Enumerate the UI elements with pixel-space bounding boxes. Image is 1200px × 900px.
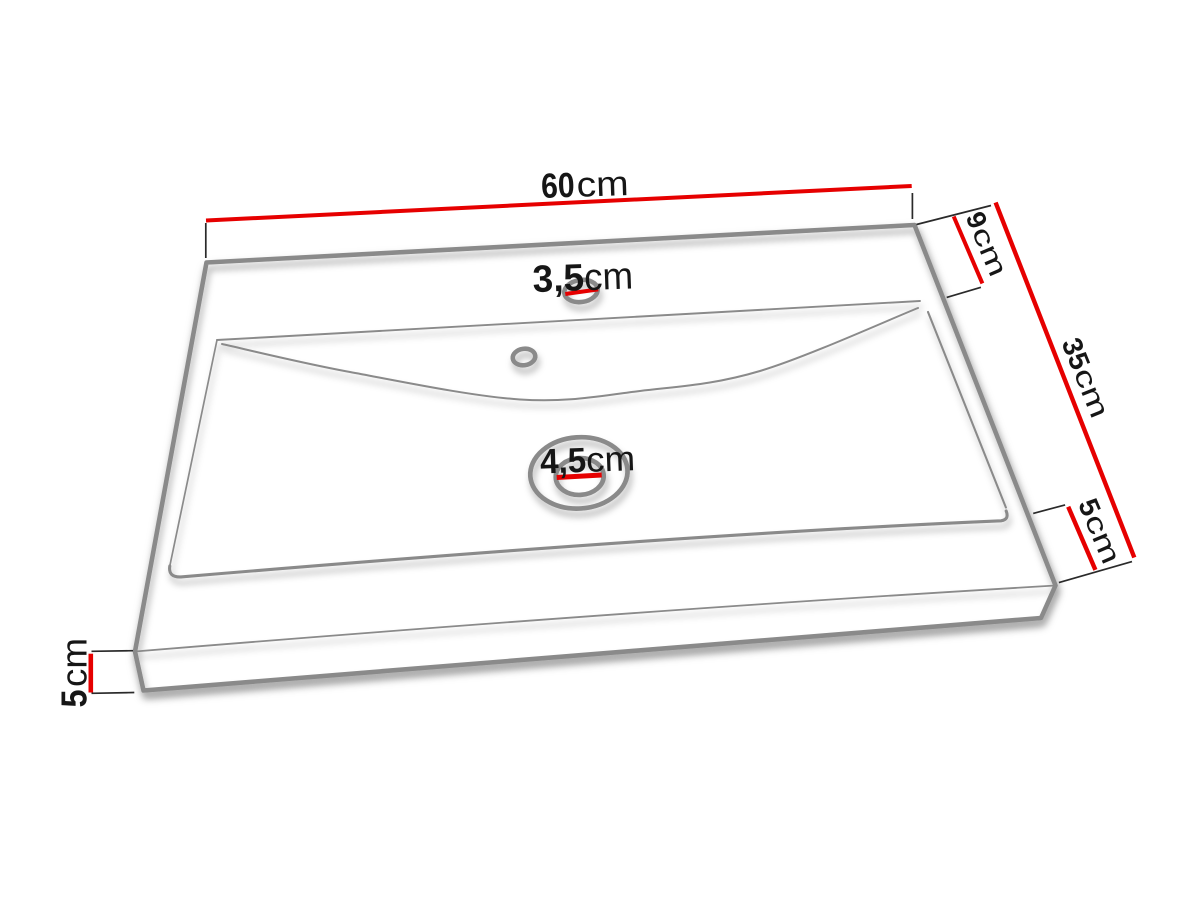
svg-text:9cm: 9cm <box>960 207 1014 280</box>
svg-text:60cm: 60cm <box>540 164 629 206</box>
svg-text:4,5cm: 4,5cm <box>539 439 635 481</box>
svg-text:5cm: 5cm <box>54 638 95 708</box>
svg-text:3,5cm: 3,5cm <box>532 256 634 301</box>
